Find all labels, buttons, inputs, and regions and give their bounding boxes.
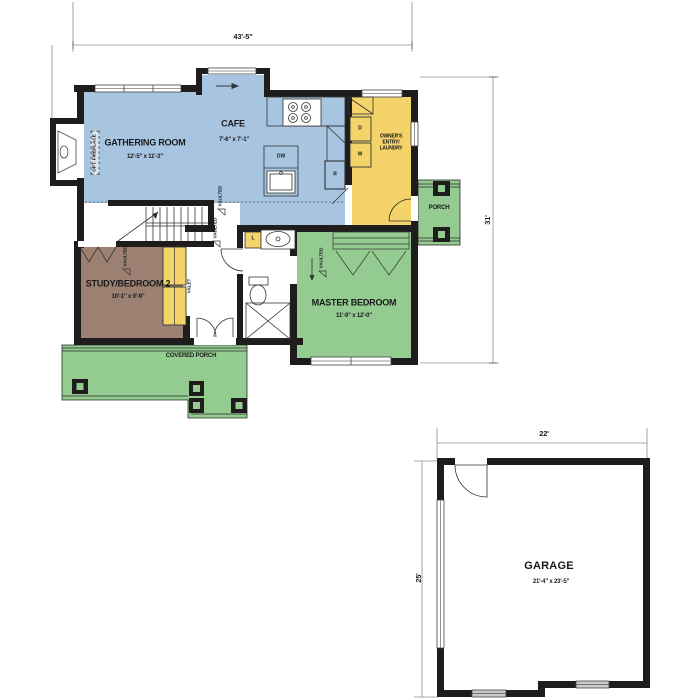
room-label-gathering: GATHERING ROOM (104, 138, 185, 147)
dimension-main-depth: 31' (484, 215, 492, 225)
cooktop (283, 99, 321, 126)
vaulted-label: VAULTED (219, 185, 224, 206)
garage-windows (437, 500, 609, 697)
bath-fixtures (245, 230, 295, 339)
room-label-porch: PORCH (429, 205, 450, 211)
vaulted-label: VAULTED (214, 217, 219, 238)
dishwasher-label: DW (277, 154, 285, 159)
room-label-master: MASTER BEDROOM (312, 298, 397, 307)
shower (246, 303, 290, 339)
garage-openings (455, 458, 487, 497)
washer-label: W (358, 152, 363, 157)
stairs (108, 203, 214, 245)
kitchen-lower-fill (240, 203, 345, 225)
window-owners-entry (362, 90, 402, 97)
room-label-covered-porch: COVERED PORCH (166, 353, 216, 359)
opt-fireplace-label: OPT. FIREPLACE (91, 131, 100, 175)
dimension-garage-width: 22' (539, 430, 549, 438)
toilet (249, 277, 268, 305)
room-size-cafe: 7'-6" x 7'-1" (219, 137, 249, 143)
refrigerator-label: R (333, 172, 337, 177)
fireplace (56, 124, 84, 178)
window-gathering (95, 85, 181, 92)
dimension-garage-depth: 25' (415, 573, 423, 583)
room-label-study: STUDY/BEDROOM 2 (86, 279, 171, 288)
room-size-master: 11'-9" x 12'-0" (336, 313, 372, 319)
floor-plan-drawing (0, 0, 700, 700)
dryer-label: D (358, 126, 362, 131)
vaulted-label: VAULTED (320, 247, 325, 268)
window-right-wall (411, 122, 418, 146)
vaulted-label: VAULTED (124, 245, 129, 266)
valet-label: VALET (188, 279, 193, 294)
room-covered-porch-fill (62, 345, 247, 418)
room-size-gathering: 12'-5" x 11'-3" (127, 154, 163, 160)
room-label-garage: GARAGE (524, 561, 573, 573)
lavatory-label: L (251, 236, 254, 241)
front-door (197, 318, 233, 337)
garage-service-door (455, 465, 487, 497)
room-size-study: 10'-1" x 9'-9" (111, 294, 144, 300)
floor-plan-page: 43'-5" 31' GATHERING ROOM 12'-5" x 11'-3… (0, 0, 700, 700)
garage-walls (437, 458, 650, 697)
window-master (311, 357, 391, 365)
room-size-garage: 21'-4" x 23'-5" (533, 579, 569, 585)
room-label-owners-entry: OWNER'S ENTRY/ LAUNDRY (380, 134, 403, 151)
room-label-cafe: CAFE (221, 119, 245, 128)
window-cafe (208, 68, 256, 74)
dimension-main-width: 43'-5" (233, 33, 252, 41)
